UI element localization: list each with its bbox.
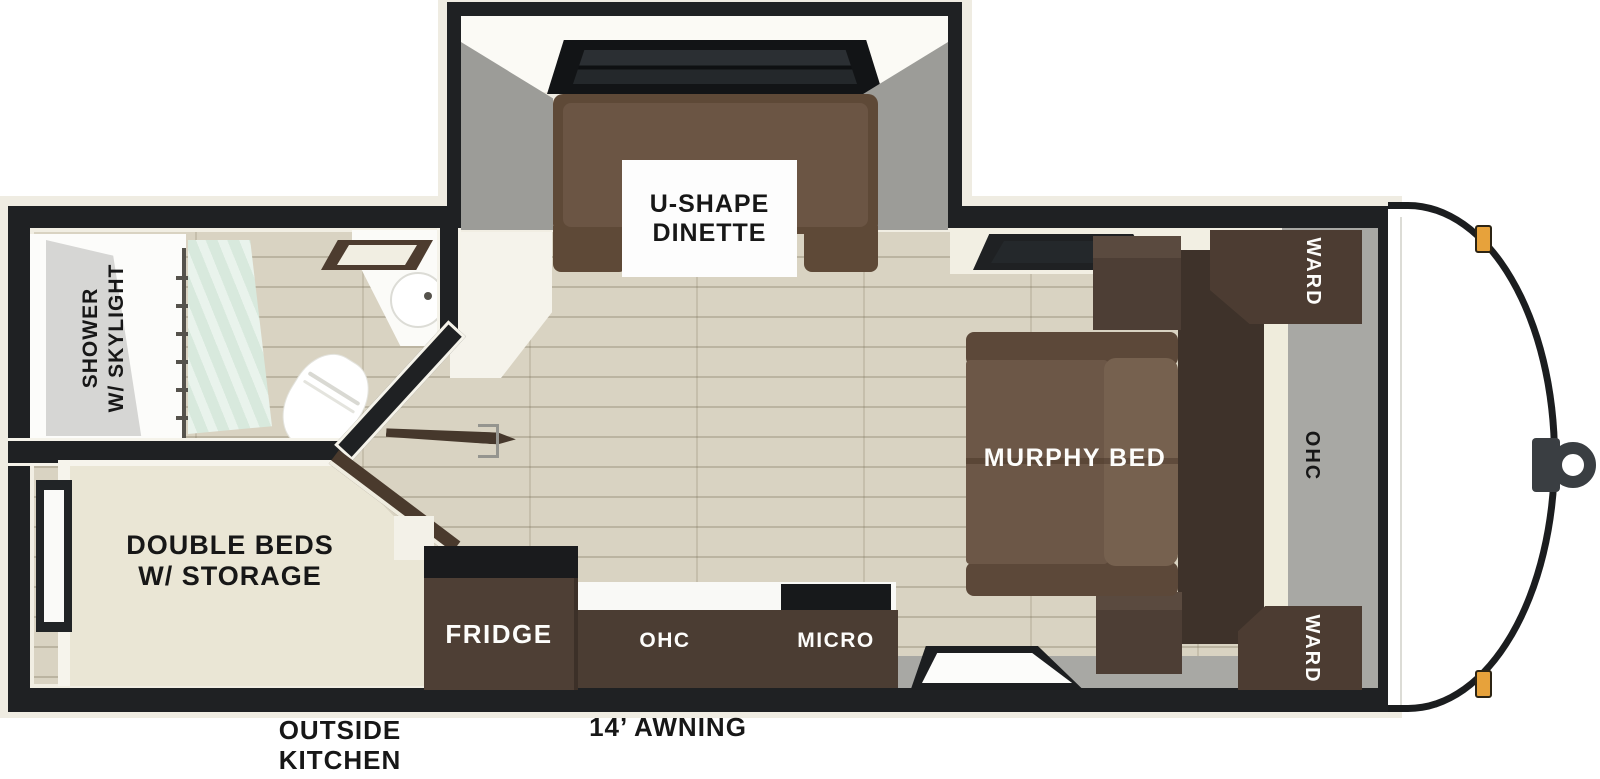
double-beds-label-line1: DOUBLE BEDS [126,530,334,561]
awning-label: 14’ AWNING [589,712,747,743]
outside-kitchen-label: OUTSIDE KITCHEN [240,714,440,776]
hitch-ring-icon [1550,442,1596,488]
floorplan-canvas: U-SHAPE DINETTE SHOWER W/ SKYLIGHT DOUBL… [0,0,1600,779]
dinette-bench-left-leg [553,226,627,272]
kitchen-ohc-label: OHC [639,629,690,653]
fridge: FRIDGE [424,578,578,690]
marker-light-top-icon [1475,225,1492,253]
bed-ohc-label: OHC [1301,431,1324,481]
dinette-label-line2: DINETTE [653,219,767,248]
fridge-top [424,546,578,580]
shower-label-line1: SHOWER [78,288,104,389]
wardrobe-bottom-label: WARD [1301,614,1324,683]
dinette-label-line1: U-SHAPE [650,190,770,219]
bed-ohc-label-wrap: OHC [1300,411,1324,501]
faucet-icon [424,292,432,300]
murphy-bed-label-wrap: MURPHY BED [980,444,1170,472]
bedroom-window-icon [36,480,72,632]
shower-label: SHOWER W/ SKYLIGHT [72,243,136,433]
bed-frame-strip [1264,320,1288,616]
dinette-bench-right-leg [804,226,878,272]
nightstand-top [1093,236,1181,330]
murphy-bed-label: MURPHY BED [984,444,1167,473]
mirror-icon [321,240,433,270]
nightstand-bottom [1096,592,1182,674]
wardrobe-top-label-wrap: WARD [1301,227,1325,317]
marker-light-bottom-icon [1475,670,1492,698]
kitchen-cabinet-face: OHC MICRO [578,610,898,688]
wardrobe-top-label: WARD [1302,237,1325,306]
murphy-bed-armrest-bottom [966,562,1178,596]
wardrobe-bottom-label-wrap: WARD [1300,604,1324,694]
tv-mount-icon [478,424,499,458]
double-beds-label: DOUBLE BEDS W/ STORAGE [105,528,355,594]
dinette-label-box: U-SHAPE DINETTE [622,160,797,277]
shower-label-line2: W/ SKYLIGHT [104,264,130,413]
double-beds-label-line2: W/ STORAGE [138,561,322,592]
awning-label-wrap: 14’ AWNING [558,712,778,742]
micro-label: MICRO [797,629,875,653]
slideout-window-icon [547,40,883,94]
outside-kitchen-label-line1: OUTSIDE [279,715,402,745]
outside-kitchen-label-line2: KITCHEN [279,745,402,775]
fridge-label: FRIDGE [445,619,552,650]
